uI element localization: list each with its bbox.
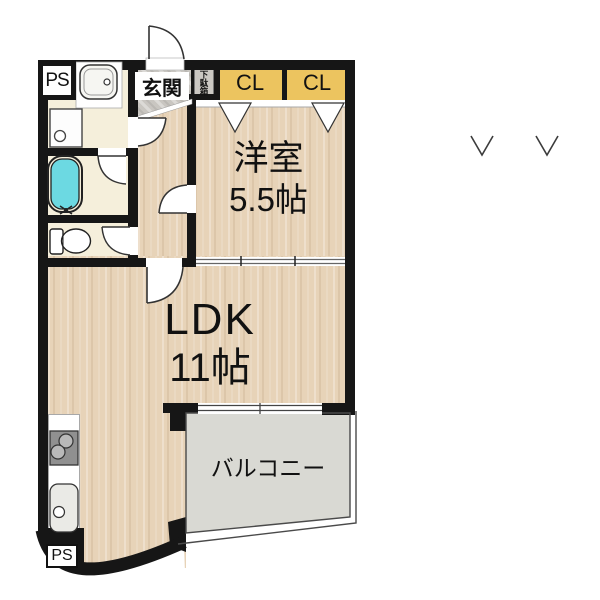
washbasin-icon [76, 62, 122, 108]
bathtub-icon [48, 156, 82, 214]
western-room-label: 洋室 5.5帖 [190, 140, 347, 218]
washroom-door-opening [128, 117, 138, 148]
western-room-name: 洋室 [190, 140, 347, 179]
pipe-space-bottom-label: PS [46, 544, 78, 568]
washroom-door-swing [138, 118, 166, 146]
closet-left-door-mark [219, 103, 251, 132]
pipe-space-top-text: PS [45, 70, 68, 92]
ldk-name: LDK [125, 296, 295, 344]
floor-plan-canvas: PS 玄関 下駄箱 CL CL 洋室 5.5帖 LDK 11帖 バルコニー PS [0, 0, 600, 600]
check-v-mark-left [471, 136, 493, 155]
closet-right-label: CL [287, 64, 347, 101]
gas-stove-icon [50, 431, 78, 465]
pipe-space-bottom-text: PS [51, 547, 72, 565]
ldk-size: 11帖 [125, 346, 295, 390]
pipe-space-top-label: PS [38, 61, 76, 100]
toilet-door-swing [102, 227, 130, 255]
washing-machine-pan-icon [50, 109, 82, 147]
bathroom-door-swing [98, 156, 126, 184]
entrance-label: 玄関 [135, 72, 189, 100]
entrance-threshold [146, 58, 184, 70]
western-room-size: 5.5帖 [190, 182, 347, 218]
balcony-text: バルコニー [211, 449, 326, 483]
shoe-cabinet-label: 下駄箱 [195, 65, 213, 100]
entrance-door-swing-arc [149, 26, 184, 59]
balcony-label: バルコニー [186, 452, 350, 480]
ldk-door-opening [146, 258, 182, 267]
closet-left-text: CL [236, 70, 264, 96]
entrance-text: 玄関 [142, 72, 182, 101]
ldk-label: LDK 11帖 [125, 296, 295, 390]
western-room-door-swing [159, 185, 187, 213]
check-v-mark-right [536, 136, 558, 155]
closet-left-label: CL [218, 64, 282, 101]
sliding-door [196, 256, 345, 266]
closet-right-door-mark [312, 103, 344, 132]
shoe-cabinet-text: 下駄箱 [198, 70, 210, 96]
balcony-window [198, 403, 322, 414]
closet-right-text: CL [303, 70, 331, 96]
toilet-icon [50, 229, 91, 254]
bathroom-door-opening [98, 148, 126, 156]
kitchen-sink-icon [50, 484, 78, 532]
